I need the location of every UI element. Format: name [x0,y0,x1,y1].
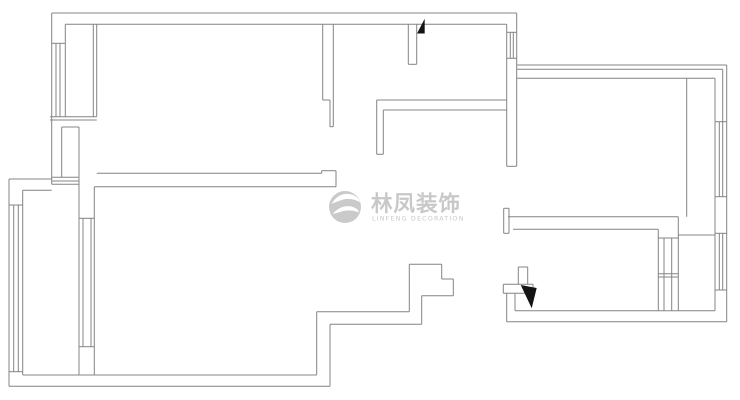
floor-plan-canvas: 林凤装饰 LINFENG DECORATION [0,0,740,400]
watermark-brand-cn: 林凤装饰 [371,191,461,217]
walls-layer [9,13,727,386]
door-direction-marker [521,285,537,308]
door-markers-layer [417,19,537,309]
door-direction-marker [417,19,425,34]
windows-layer [9,32,727,371]
watermark-brand-en: LINFENG DECORATION [372,215,465,223]
floor-plan: 林凤装饰 LINFENG DECORATION [0,0,740,400]
linfeng-logo-icon [329,191,361,223]
watermark: 林凤装饰 LINFENG DECORATION [329,191,465,223]
